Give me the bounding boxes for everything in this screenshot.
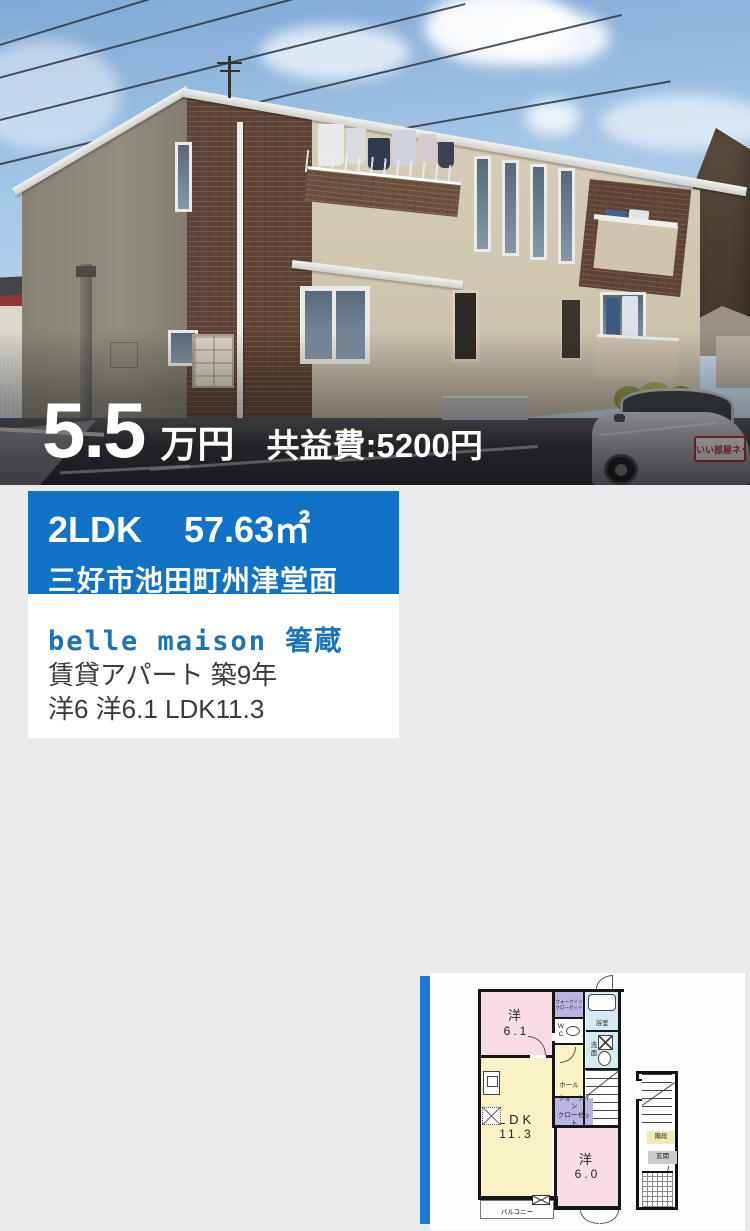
bath-label: 浴室 <box>596 1020 609 1028</box>
address: 三好市池田町州津堂面 <box>48 559 399 599</box>
wall <box>583 992 585 1125</box>
layout-type: 2LDK <box>48 509 142 551</box>
room-west2: 洋 6.0 <box>557 1128 618 1206</box>
wall <box>552 1125 621 1128</box>
ldk-label: LDK <box>498 1113 535 1128</box>
floorplan-accent-bar <box>420 976 430 1224</box>
wall <box>478 989 624 992</box>
wash-label: 洗 <box>591 1042 598 1050</box>
room-wic1: ウォークイン クローゼット <box>555 992 583 1017</box>
laundry-item <box>418 134 436 164</box>
wall <box>585 1068 619 1070</box>
bathtub-icon <box>588 994 616 1011</box>
stairs-label-box: 階段 <box>647 1131 675 1144</box>
tv-antenna-icon <box>217 62 242 64</box>
sink-icon <box>598 1051 611 1066</box>
building-type-age: 賃貸アパート 築9年 <box>48 655 277 692</box>
hall-label: ホール <box>559 1082 579 1090</box>
property-photo[interactable]: いい部屋ネット 5.5 万円 共益費:5200円 <box>0 0 750 485</box>
wall <box>478 1055 530 1058</box>
wall <box>478 989 481 1200</box>
balcony-label: バルコニー <box>501 1209 533 1217</box>
window-symbol <box>532 1195 550 1205</box>
property-name: belle maison 箸蔵 <box>48 619 343 658</box>
wall <box>586 1030 618 1032</box>
west2-size: 6.0 <box>575 1167 601 1181</box>
wc-label: W <box>558 1023 564 1031</box>
side-window-upper <box>175 142 192 212</box>
tall-window <box>558 168 575 264</box>
layout-area-line: 2LDK 57.63㎡ <box>48 501 399 553</box>
wall <box>554 1128 557 1206</box>
tall-window <box>474 156 491 252</box>
entrance-label-box: 玄関 <box>648 1151 677 1164</box>
room-west1-label: 洋 <box>508 1009 525 1024</box>
listing-info-card[interactable]: 2LDK 57.63㎡ 三好市池田町州津堂面 belle maison 箸蔵 賃… <box>28 491 399 738</box>
wash-label2: 面 <box>591 1050 598 1058</box>
wall <box>618 989 621 1210</box>
far-balcony-panel <box>593 218 678 276</box>
maintenance-fee: 共益費:5200円 <box>266 419 482 467</box>
info-section: 2LDK 57.63㎡ 三好市池田町州津堂面 belle maison 箸蔵 賃… <box>0 485 750 750</box>
room-wic2: ウォークイン クローゼット <box>555 1098 593 1125</box>
toilet-icon <box>566 1026 580 1036</box>
room-bath: 浴室 <box>586 992 618 1030</box>
price-unit: 万円 <box>160 414 234 468</box>
wall <box>552 992 555 1033</box>
stairs-label: 階段 <box>655 1133 668 1141</box>
room-west1-size: 6.1 <box>504 1024 530 1038</box>
wic1-label2: クローゼット <box>556 1005 583 1011</box>
washer-icon <box>598 1035 613 1050</box>
entrance-label: 玄関 <box>656 1153 669 1161</box>
cloud <box>500 10 610 65</box>
tall-window <box>530 164 547 260</box>
rooms-summary: 洋6 洋6.1 LDK11.3 <box>48 689 264 726</box>
wall <box>555 1017 583 1019</box>
wc-label2: C <box>558 1031 564 1039</box>
ldk-size: 11.3 <box>499 1127 533 1141</box>
tall-window <box>502 160 519 256</box>
layout-address-banner: 2LDK 57.63㎡ 三好市池田町州津堂面 <box>28 491 399 594</box>
price-row: 5.5 万円 共益費:5200円 <box>42 391 483 469</box>
tv-antenna-icon <box>220 70 240 72</box>
listing-page: いい部屋ネット 5.5 万円 共益費:5200円 2LDK 57.63㎡ 三好市… <box>0 0 750 750</box>
pole-hardware <box>76 266 96 277</box>
wall <box>555 1043 583 1045</box>
floorplan[interactable]: 洋 6.1 ウォークイン クローゼット W C 浴室 洗 <box>420 973 750 1231</box>
room-wash: 洗 面 <box>586 1032 618 1068</box>
price-amount: 5.5 <box>42 391 144 469</box>
room-wc: W C <box>555 1019 583 1043</box>
stove-icon <box>482 1107 501 1125</box>
wall <box>552 1096 585 1098</box>
kitchen-counter-icon <box>483 1071 500 1095</box>
west2-label: 洋 <box>579 1153 596 1168</box>
floor-area: 57.63㎡ <box>184 501 310 553</box>
wall <box>546 1055 555 1058</box>
porch-grid <box>642 1171 673 1207</box>
